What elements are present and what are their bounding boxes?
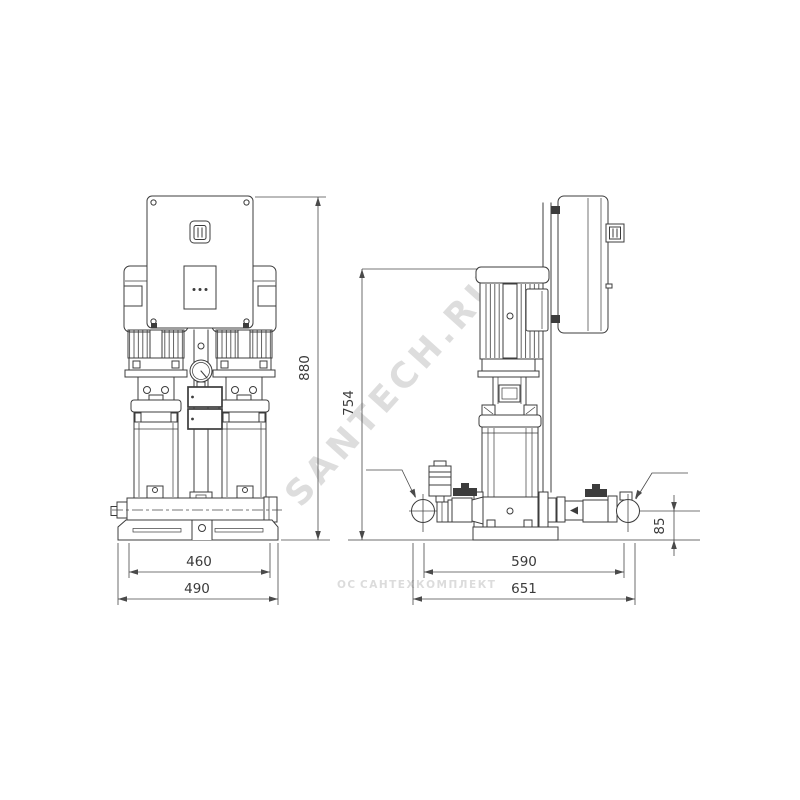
discharge-piping — [548, 484, 640, 532]
technical-drawing-page: SANTECH.RU ОС САНТЕХКОМПЛЕКТ — [0, 0, 800, 800]
dimension-base-inner-width: 460 — [129, 543, 270, 578]
panel-dot-icon — [199, 288, 202, 291]
pump-set-dimensional-drawing: SANTECH.RU ОС САНТЕХКОМПЛЕКТ — [0, 0, 800, 800]
watermark-diagonal: SANTECH.RU — [278, 263, 510, 515]
suction-piping — [409, 461, 483, 532]
watermark-footer-text: САНТЕХКОМПЛЕКТ — [360, 579, 496, 591]
watermark-footer-logo: ОС — [337, 579, 357, 591]
pressure-gauge-icon — [190, 360, 212, 387]
dim-label-754: 754 — [341, 390, 357, 416]
motor-side — [476, 267, 549, 377]
dim-label-880: 880 — [297, 355, 313, 381]
valve-handle-icon — [453, 488, 477, 496]
panel-dot-icon — [193, 288, 196, 291]
dim-label-590: 590 — [511, 554, 537, 570]
cabinet-bracket — [543, 203, 551, 492]
front-view: 880 460 490 — [111, 196, 330, 605]
display-panel — [184, 266, 216, 309]
cable-gland-side-icon — [606, 224, 624, 242]
cable-gland-icon — [190, 221, 210, 243]
pressure-switch-box-2 — [188, 409, 222, 429]
flow-box — [565, 501, 583, 520]
pump-side — [479, 377, 541, 527]
control-cabinet-side — [551, 196, 624, 333]
pressure-switch-box-1 — [188, 387, 222, 407]
manifold — [111, 497, 282, 522]
pump-left — [131, 377, 181, 498]
control-cabinet — [147, 196, 253, 328]
panel-dot-icon — [205, 288, 208, 291]
dimension-overall-length: 651 — [413, 543, 635, 605]
connection-boundary-left — [366, 470, 416, 498]
watermarks: SANTECH.RU ОС САНТЕХКОМПЛЕКТ — [278, 263, 510, 591]
suction-port — [409, 494, 437, 532]
dim-label-460: 460 — [186, 554, 212, 570]
discharge-valve — [583, 484, 617, 522]
dimension-pipe-centerline-height: 85 — [640, 495, 700, 556]
diaphragm-tank-icon — [429, 461, 451, 502]
dim-label-85: 85 — [652, 517, 668, 534]
dimension-port-span: 590 — [424, 543, 624, 578]
valve-handle-icon — [585, 489, 607, 497]
pump-right — [219, 377, 269, 498]
dimension-base-outer-width: 490 — [118, 543, 278, 605]
base-frame — [118, 520, 278, 540]
dim-label-490: 490 — [184, 581, 210, 597]
dim-label-651: 651 — [511, 581, 537, 597]
connection-boundary-right — [635, 473, 688, 499]
